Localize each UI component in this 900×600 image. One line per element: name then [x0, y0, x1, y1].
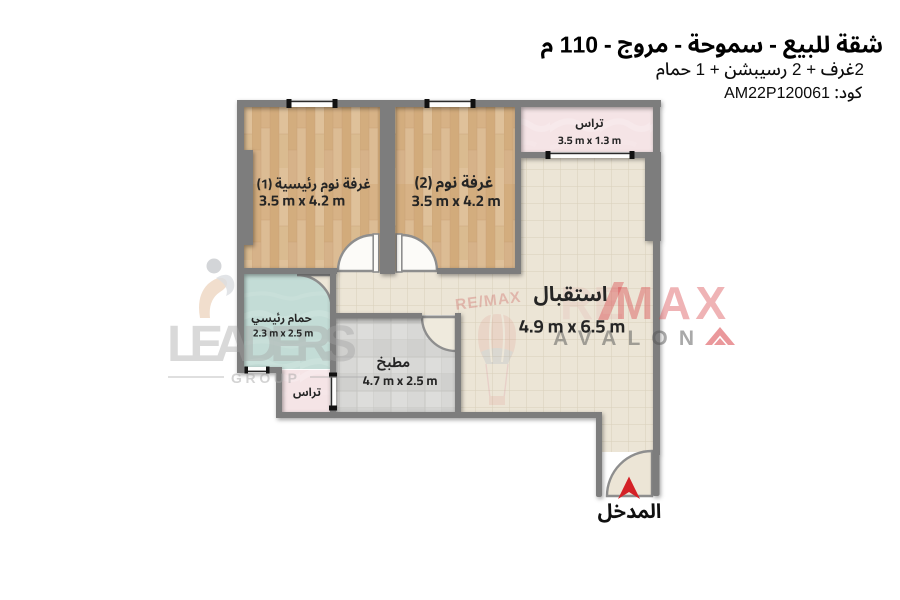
svg-text:MAX: MAX — [615, 277, 726, 329]
svg-text:GROUP: GROUP — [231, 370, 303, 386]
svg-text:LEADERS: LEADERS — [167, 315, 357, 372]
